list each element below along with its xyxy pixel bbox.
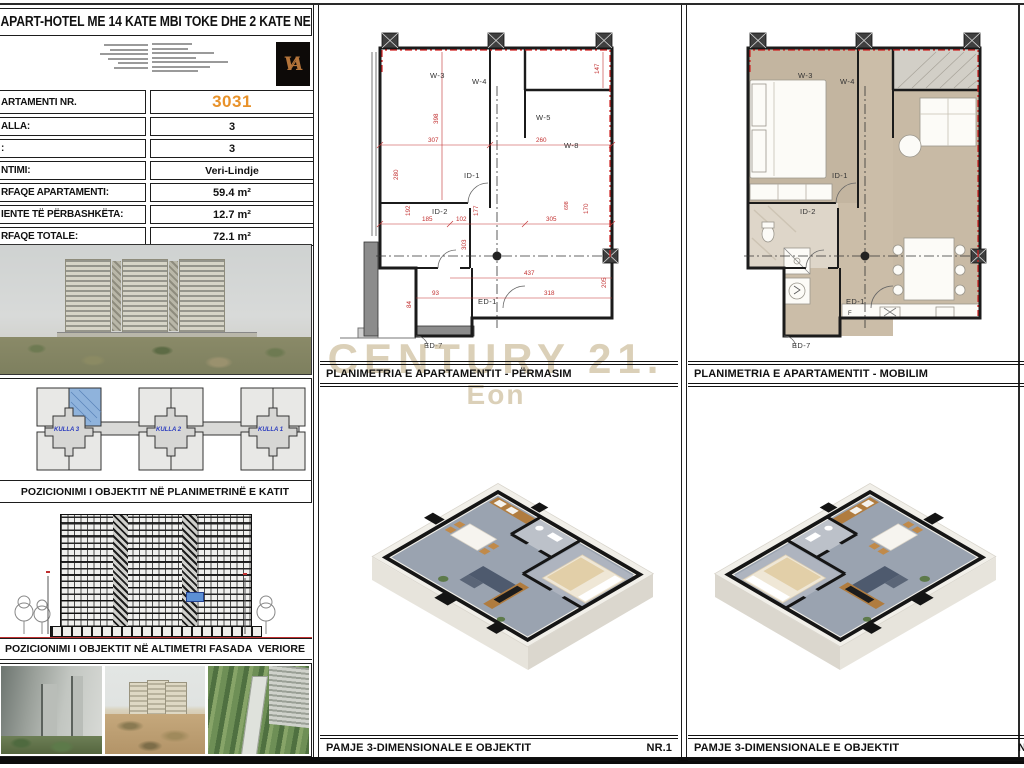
svg-text:318: 318: [544, 290, 555, 297]
plan-measured: 307 260 398 147 185 102 305 192 177 170 …: [320, 28, 678, 362]
site-plan-box: KULLA 3 KULLA 2 KULLA 1 POZICIONIMI I OB…: [0, 378, 312, 503]
kulla2-label: KULLA 2: [156, 427, 182, 433]
view3d-left-caption: PAMJE 3-DIMENSIONALE E OBJEKTIT: [326, 742, 531, 754]
svg-text:ED-1: ED-1: [846, 297, 865, 306]
elevation-box: POZICIONIMI I OBJEKTIT NË ALTIMETRI FASA…: [0, 506, 312, 660]
furnished-plan-caption: PLANIMETRIA E APARTAMENTIT - MOBILIM: [694, 368, 928, 380]
axis-node: [493, 252, 502, 261]
shkalla-value: 3: [229, 121, 235, 133]
svg-text:93: 93: [432, 290, 440, 297]
svg-text:ED-1: ED-1: [478, 297, 497, 306]
svg-text:W-5: W-5: [536, 113, 551, 122]
measured-plan-caption: PLANIMETRIA E APARTAMENTIT - PËRMASIM: [326, 368, 572, 380]
sheet-top-border: [0, 3, 1024, 5]
ambiente-value: 12.7 m²: [213, 209, 251, 221]
row-label-apartment-nr: ARTAMENTI NR.: [0, 97, 77, 108]
row-label-siperfaqe-totale: RFAQE TOTALE:: [0, 231, 78, 242]
elevation-landscape: [0, 566, 312, 638]
svg-text:F: F: [848, 311, 852, 317]
photo-strip: [0, 663, 312, 757]
site-plan-drawing: KULLA 3 KULLA 2 KULLA 1: [17, 380, 327, 480]
view3d-right-number: N: [1018, 742, 1024, 754]
studio-logo: VA: [276, 42, 310, 86]
photo-building-base: [1, 666, 102, 754]
photo3-column: [240, 676, 268, 754]
svg-text:W-8: W-8: [564, 141, 579, 150]
svg-text:307: 307: [428, 137, 439, 144]
iso-plan-left: [360, 477, 657, 650]
svg-text:W-4: W-4: [840, 77, 855, 86]
svg-text:303: 303: [461, 239, 468, 250]
photo-towers-dunes: [105, 666, 206, 754]
company-info-block-2: [152, 43, 236, 72]
structural-columns: [382, 33, 618, 263]
svg-text:ID-1: ID-1: [832, 171, 848, 180]
svg-text:437: 437: [524, 270, 535, 277]
iso-plan-right: [710, 477, 1007, 650]
svg-text:185: 185: [422, 216, 433, 223]
svg-text:205: 205: [601, 277, 608, 288]
axis-node-furnished: [861, 252, 870, 261]
svg-text:177: 177: [473, 205, 480, 216]
photo-core-left: [112, 261, 121, 331]
unit-walls: [380, 48, 612, 336]
svg-text:ID-2: ID-2: [432, 207, 448, 216]
svg-text:W-4: W-4: [472, 77, 487, 86]
siperfaqe-totale-value: 72.1 m²: [213, 231, 251, 243]
axis-lines: [376, 86, 616, 328]
photo-tower-middle: [122, 259, 168, 333]
orientimi-value: Veri-Lindje: [205, 165, 259, 177]
svg-text:698: 698: [564, 201, 570, 210]
view3d-right-drawing: [692, 392, 1024, 732]
row-label-orientimi: NTIMI:: [0, 165, 30, 176]
svg-text:W-3: W-3: [798, 71, 813, 80]
row-label-shkalla: ALLA:: [0, 121, 30, 132]
elevation-caption: POZICIONIMI I OBJEKTIT NË ALTIMETRI FASA…: [0, 638, 312, 660]
svg-text:ID-2: ID-2: [800, 207, 816, 216]
plan-sheet: { "sheet": { "title": "APART-HOTEL ME 14…: [0, 0, 1024, 768]
photo1-greenery: [1, 736, 102, 754]
row-label-kati: :: [0, 143, 4, 154]
photo2-dune: [105, 714, 206, 754]
photo-tower-left: [65, 259, 111, 333]
photo2-tower3: [165, 682, 187, 718]
kati-value: 3: [229, 143, 235, 155]
view3d-right-caption-bar: PAMJE 3-DIMENSIONALE E OBJEKTIT N: [688, 738, 1024, 758]
svg-text:84: 84: [406, 300, 413, 308]
plan-furnished: W-3 W-4 ID-1 ID-2 ED-1 ED-7 F: [688, 28, 1024, 362]
svg-text:192: 192: [405, 205, 412, 216]
dimension-texts: 307 260 398 147 185 102 305 192 177 170 …: [393, 63, 608, 308]
company-info-block-1: [96, 44, 148, 69]
svg-text:280: 280: [393, 169, 400, 180]
photo-core-right: [169, 261, 178, 331]
studio-monogram: VA: [283, 53, 302, 75]
svg-text:170: 170: [583, 203, 590, 214]
row-label-siperfaqe-apartamenti: RFAQE APARTAMENTI:: [0, 187, 109, 198]
svg-text:ID-1: ID-1: [464, 171, 480, 180]
panel-divider-right-b: [686, 5, 687, 757]
photo-green-facade: [208, 666, 309, 754]
svg-text:W-3: W-3: [430, 71, 445, 80]
measured-plan-caption-bar: PLANIMETRIA E APARTAMENTIT - PËRMASIM: [320, 364, 678, 384]
view3d-left-caption-bar: PAMJE 3-DIMENSIONALE E OBJEKTIT NR.1: [320, 738, 678, 758]
kulla3-label: KULLA 3: [54, 427, 80, 433]
photo3-facade: [269, 666, 309, 728]
svg-text:ED-7: ED-7: [792, 341, 811, 350]
apartment-number: 3031: [212, 92, 252, 112]
view3d-left-drawing: [330, 392, 670, 732]
furnished-plan-caption-bar: PLANIMETRIA E APARTAMENTIT - MOBILIM: [688, 364, 1024, 384]
boundary-dashdot: [382, 50, 610, 260]
sheet-title-box: APART-HOTEL ME 14 KATE MBI TOKE DHE 2 KA…: [0, 8, 312, 36]
svg-text:102: 102: [456, 216, 467, 223]
sheet-title: APART-HOTEL ME 14 KATE MBI TOKE DHE 2 KA…: [0, 14, 312, 30]
svg-text:260: 260: [536, 137, 547, 144]
view3d-right-caption: PAMJE 3-DIMENSIONALE E OBJEKTIT: [694, 742, 899, 754]
kulla1-label: KULLA 1: [258, 427, 284, 433]
photo-tower-right: [179, 259, 225, 333]
building-render-photo: [0, 244, 312, 375]
room-labels-measured: W-3 W-4 W-5 W-8 ID-1 ID-2 ED-1 ED-7: [424, 71, 579, 350]
view3d-left-number: NR.1: [647, 742, 672, 754]
svg-text:398: 398: [433, 113, 440, 124]
svg-text:ED-7: ED-7: [424, 341, 443, 350]
siperfaqe-apartamenti-value: 59.4 m²: [213, 187, 251, 199]
svg-text:305: 305: [546, 216, 557, 223]
site-plan-caption: POZICIONIMI I OBJEKTIT NË PLANIMETRINË E…: [0, 480, 311, 502]
row-label-ambiente: IENTE TË PËRBASHKËTA:: [0, 209, 123, 220]
photo-vegetation: [0, 337, 312, 375]
panel-divider-right-a: [681, 5, 682, 757]
svg-text:147: 147: [594, 63, 601, 74]
